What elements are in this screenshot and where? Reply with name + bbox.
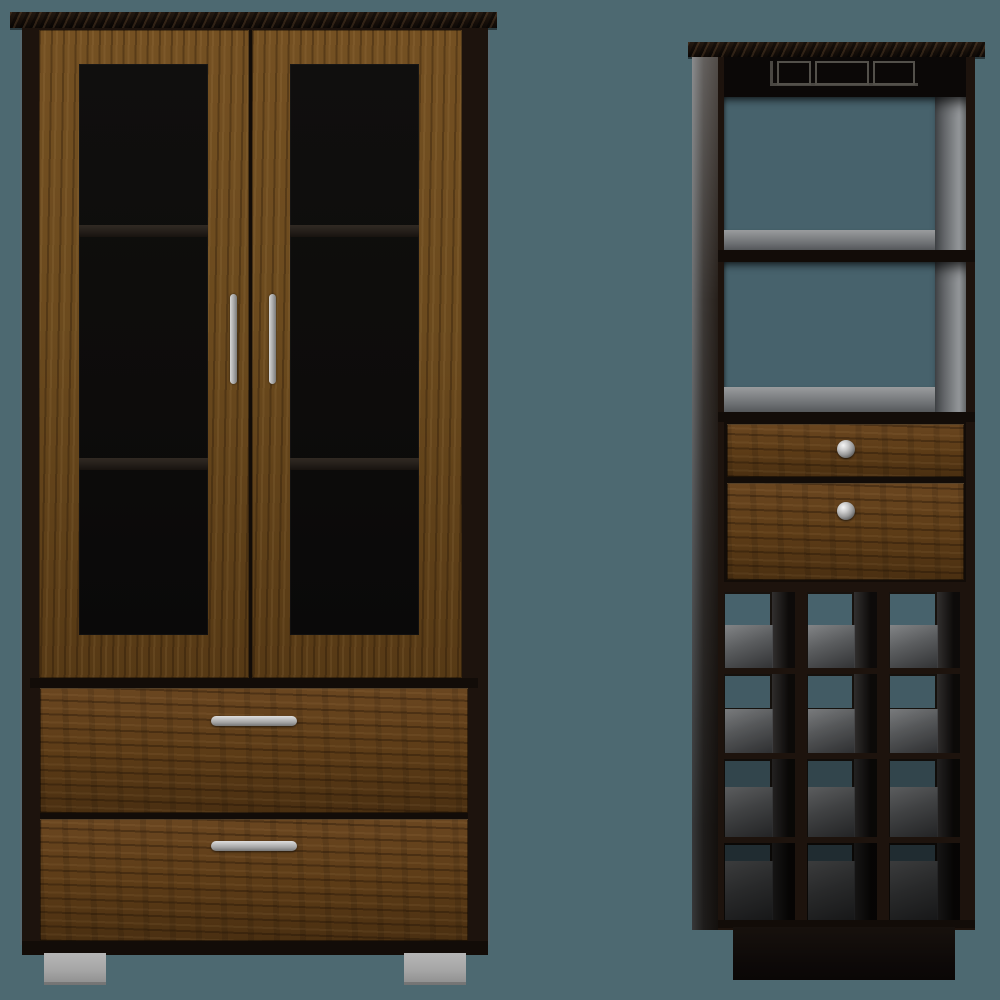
armoire-foot-right bbox=[404, 953, 466, 985]
open-shelf-1-surface bbox=[724, 230, 935, 250]
bar-cabinet-plinth bbox=[733, 927, 955, 980]
stemware-rack-header bbox=[724, 57, 966, 97]
bar-cabinet bbox=[650, 0, 1000, 1000]
armoire-right-door bbox=[252, 30, 462, 678]
cubby-right-wall bbox=[937, 843, 960, 921]
door-drawer-divider bbox=[30, 678, 478, 688]
open-shelf-1-back bbox=[724, 97, 935, 230]
cubby-open-back bbox=[890, 594, 935, 625]
door-center-gap bbox=[249, 30, 252, 678]
left-door-glass-panel bbox=[79, 64, 208, 635]
cubby-right-wall bbox=[937, 592, 960, 668]
stemware-slot bbox=[777, 61, 811, 85]
cubby-open-back bbox=[808, 676, 852, 708]
armoire-crown bbox=[10, 12, 497, 28]
cubby-floor bbox=[725, 861, 773, 921]
cubby-floor bbox=[808, 625, 855, 668]
open-shelf-2-back bbox=[724, 262, 935, 387]
wine-cubby bbox=[724, 843, 795, 921]
open-shelf-2-surface bbox=[724, 387, 935, 412]
cubby-floor bbox=[725, 625, 773, 668]
drawer-1-handle-bar bbox=[211, 716, 297, 726]
right-door-glass-panel bbox=[290, 64, 419, 635]
armoire-drawer-1 bbox=[40, 688, 468, 813]
cubby-open-back bbox=[808, 761, 852, 787]
wine-cubby bbox=[724, 592, 795, 668]
cubby-right-wall bbox=[937, 759, 960, 837]
cubby-open-back bbox=[725, 594, 770, 625]
armoire-right-edge-highlight bbox=[488, 30, 490, 945]
wine-cubby bbox=[889, 759, 960, 837]
cubby-floor bbox=[890, 709, 938, 753]
cubby-floor bbox=[725, 787, 773, 837]
open-shelf-1-right-wall bbox=[935, 97, 966, 250]
cubby-open-back bbox=[890, 761, 935, 787]
cubby-right-wall bbox=[772, 592, 795, 668]
cubby-open-back bbox=[725, 761, 770, 787]
cubby-floor bbox=[890, 625, 938, 668]
wine-cubby bbox=[889, 843, 960, 921]
interior-shelf-line bbox=[290, 458, 419, 470]
drawer-2-handle-bar bbox=[211, 841, 297, 851]
interior-shelf-line bbox=[290, 225, 419, 237]
cubby-open-back bbox=[890, 676, 935, 708]
right-door-handle-bar bbox=[269, 294, 276, 384]
stemware-slot bbox=[873, 61, 915, 85]
cubby-right-wall bbox=[772, 759, 795, 837]
wine-cubby bbox=[807, 674, 877, 753]
cubby-open-back bbox=[890, 845, 935, 861]
wine-cubby bbox=[807, 843, 877, 921]
stemware-slot bbox=[815, 61, 869, 85]
stemware-rack-slat bbox=[770, 61, 773, 85]
cubby-open-back bbox=[725, 676, 770, 708]
wine-cubby bbox=[807, 592, 877, 668]
wine-cubby bbox=[889, 592, 960, 668]
open-shelf-2-right-wall bbox=[935, 262, 966, 412]
cubby-open-back bbox=[725, 845, 770, 861]
wine-cubby bbox=[724, 674, 795, 753]
cubby-floor bbox=[808, 787, 855, 837]
armoire-foot-left bbox=[44, 953, 106, 985]
cubby-right-wall bbox=[854, 759, 877, 837]
bar-drawer-1-knob bbox=[837, 440, 855, 458]
cubby-floor bbox=[808, 861, 855, 921]
wine-cubby bbox=[724, 759, 795, 837]
left-door-handle-bar bbox=[230, 294, 237, 384]
cubby-open-back bbox=[808, 845, 852, 861]
product-image-canvas bbox=[0, 0, 1000, 1000]
armoire bbox=[0, 0, 500, 1000]
armoire-left-edge-highlight bbox=[20, 30, 22, 945]
bar-cabinet-side-panel bbox=[692, 57, 718, 930]
open-shelf-1-front-edge bbox=[718, 250, 975, 262]
armoire-left-door bbox=[39, 30, 249, 678]
cubby-right-wall bbox=[772, 674, 795, 753]
bar-drawer-2 bbox=[727, 483, 964, 580]
wine-cubby-grid bbox=[724, 592, 961, 921]
cubby-open-back bbox=[808, 594, 852, 625]
interior-shelf-line bbox=[79, 458, 208, 470]
armoire-drawer-2 bbox=[40, 819, 468, 941]
drawer-section-top-rail bbox=[718, 412, 975, 422]
interior-shelf-line bbox=[79, 225, 208, 237]
cubby-right-wall bbox=[854, 674, 877, 753]
wine-cubby bbox=[889, 674, 960, 753]
cubby-floor bbox=[890, 861, 938, 921]
cubby-floor bbox=[808, 709, 855, 753]
cubby-right-wall bbox=[772, 843, 795, 921]
cubby-right-wall bbox=[854, 592, 877, 668]
cubby-floor bbox=[725, 709, 773, 753]
bar-drawer-2-knob bbox=[837, 502, 855, 520]
cubby-right-wall bbox=[854, 843, 877, 921]
wine-cubby bbox=[807, 759, 877, 837]
bar-cabinet-crown bbox=[688, 42, 985, 57]
cubby-floor bbox=[890, 787, 938, 837]
cubby-right-wall bbox=[937, 674, 960, 753]
